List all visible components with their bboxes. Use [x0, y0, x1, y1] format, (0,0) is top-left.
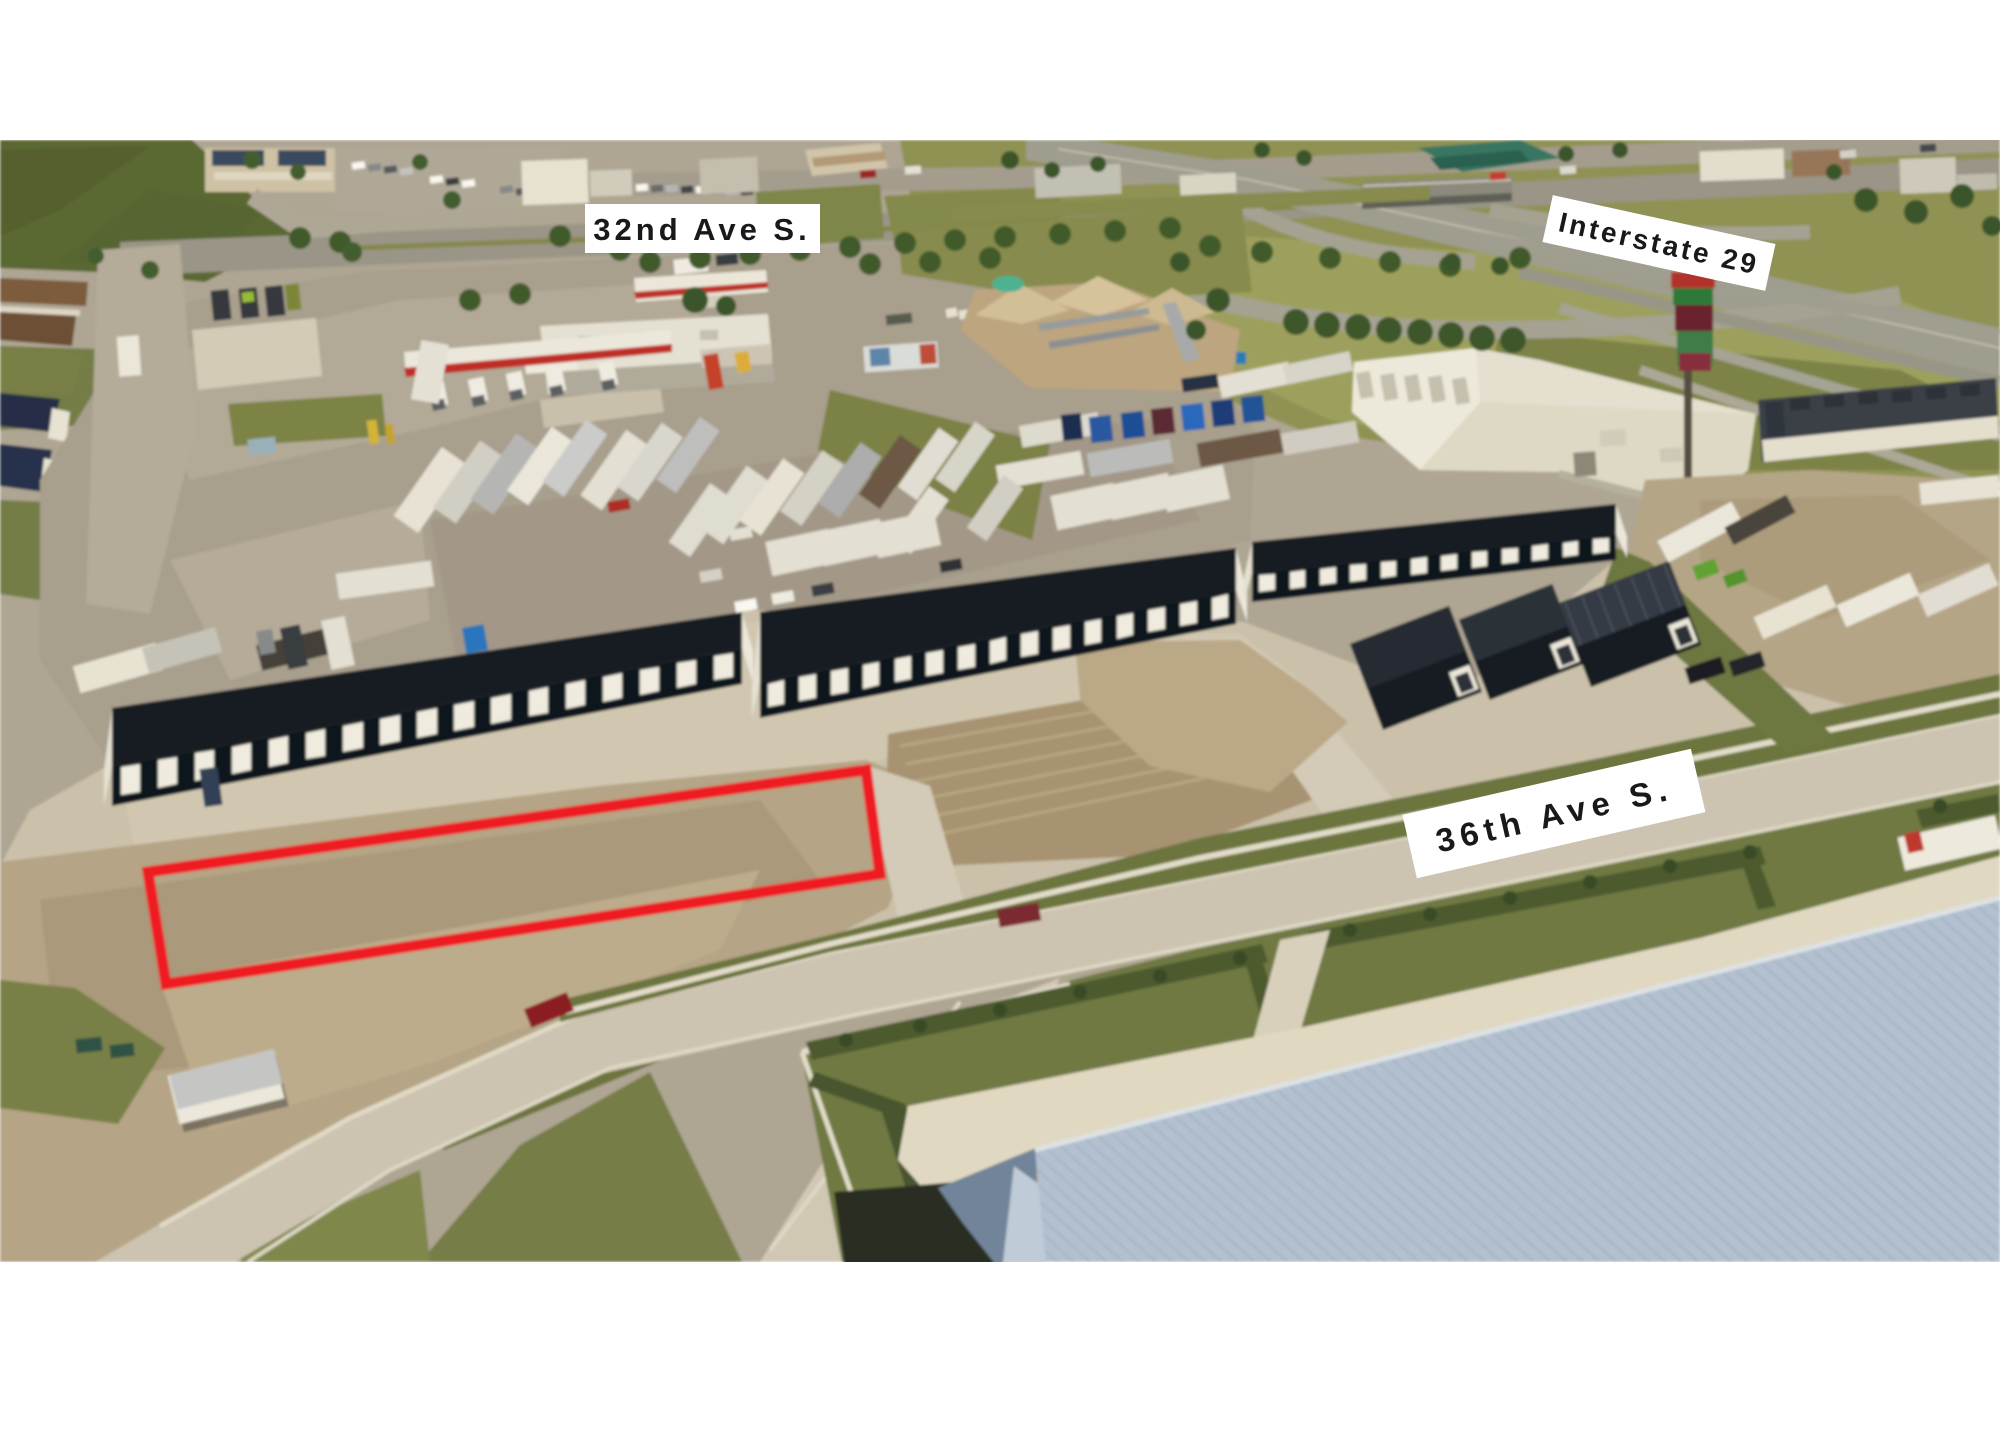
- svg-text:32nd Ave S.: 32nd Ave S.: [593, 212, 810, 247]
